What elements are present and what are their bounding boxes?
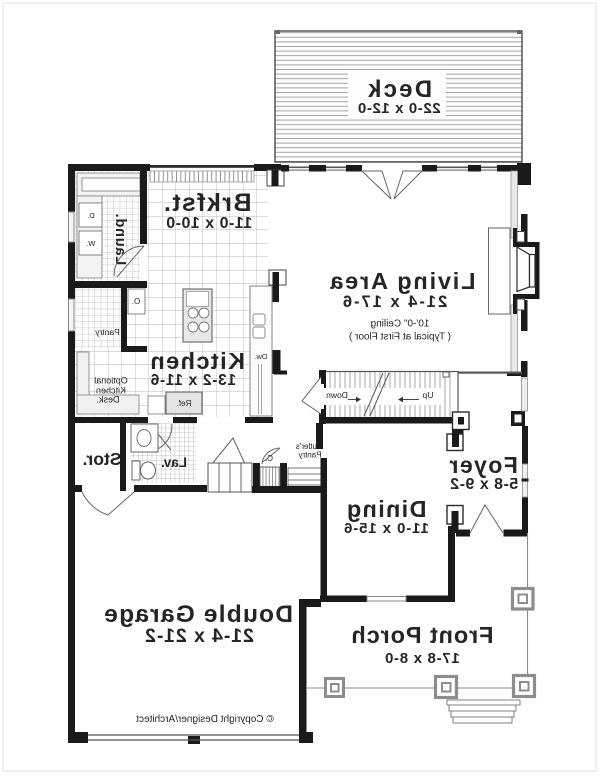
svg-text:( Typical at First Floor ): ( Typical at First Floor ) (349, 332, 451, 343)
svg-text:© Copyright Designer/Architect: © Copyright Designer/Architect (136, 714, 274, 725)
svg-text:Brkfst.: Brkfst. (163, 189, 252, 217)
svg-text:11-0 x 15-6: 11-0 x 15-6 (343, 520, 429, 537)
svg-text:21-4 x 21-2: 21-4 x 21-2 (144, 625, 254, 647)
svg-text:Up: Up (422, 390, 433, 400)
svg-text:Foyer: Foyer (448, 452, 518, 478)
svg-text:Desk.: Desk. (96, 395, 119, 405)
svg-text:13-2 x 11-6: 13-2 x 11-6 (150, 372, 236, 389)
svg-text:22-0 x 12-0: 22-0 x 12-0 (357, 100, 440, 117)
svg-text:D.: D. (87, 211, 95, 220)
svg-text:Kitchen: Kitchen (149, 348, 245, 374)
svg-text:Ref.: Ref. (177, 399, 192, 408)
svg-text:17-8 x 8-0: 17-8 x 8-0 (384, 650, 459, 667)
svg-text:21-4 x 17-6: 21-4 x 17-6 (341, 293, 447, 311)
svg-text:O.: O. (132, 297, 140, 306)
svg-text:5-8 x 9-2: 5-8 x 9-2 (450, 476, 519, 493)
svg-text:Pantry: Pantry (298, 451, 321, 460)
svg-text:Optional: Optional (94, 376, 128, 386)
svg-text:W.: W. (87, 239, 96, 248)
svg-text:C.: C. (265, 454, 273, 463)
svg-text:Deck: Deck (366, 76, 432, 103)
svg-text:11-0 x 10-0: 11-0 x 10-0 (166, 215, 252, 232)
svg-text:Down: Down (326, 390, 348, 400)
svg-text:10'-0" Ceiling: 10'-0" Ceiling (371, 319, 430, 330)
svg-text:Front Porch: Front Porch (350, 622, 493, 648)
svg-text:Living Area: Living Area (329, 268, 476, 294)
svg-text:Dw.: Dw. (255, 352, 268, 361)
svg-text:Pantry: Pantry (94, 327, 119, 337)
svg-text:Double Garage: Double Garage (103, 601, 293, 628)
svg-text:Dining: Dining (346, 496, 427, 522)
svg-text:Stor.: Stor. (83, 449, 122, 469)
svg-text:Lav.: Lav. (161, 455, 187, 470)
